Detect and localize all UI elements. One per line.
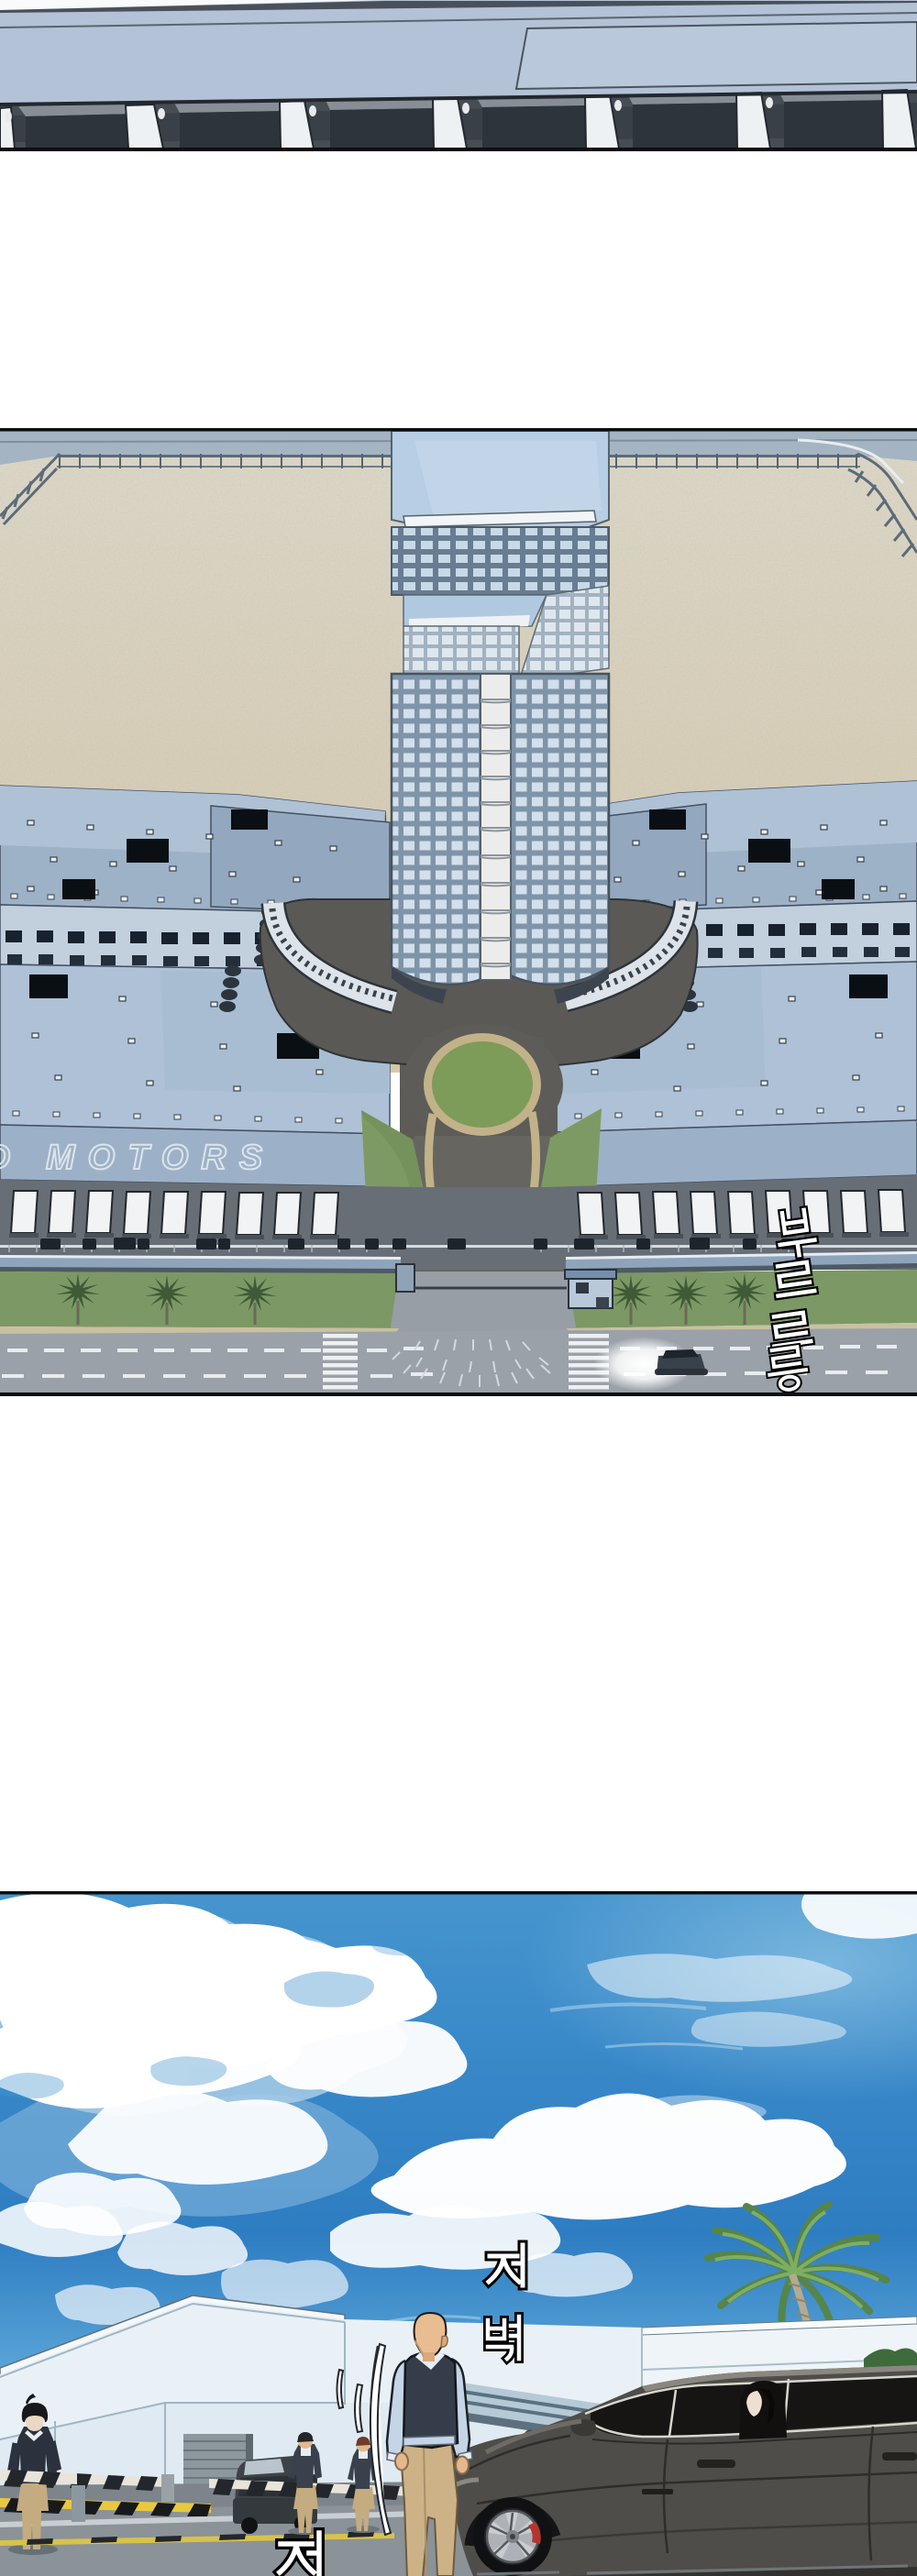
svg-text:D MOTORS: D MOTORS (0, 1139, 275, 1177)
